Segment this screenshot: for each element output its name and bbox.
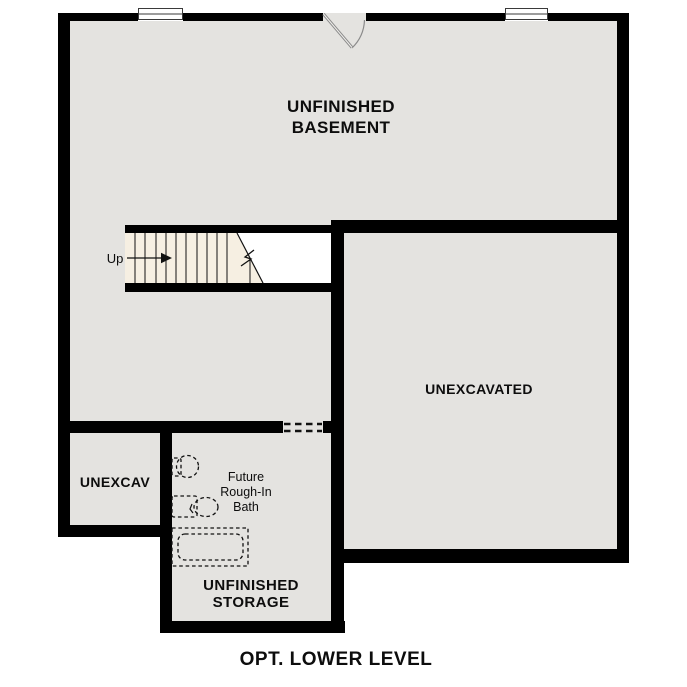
wall-left [58, 13, 70, 537]
wall-unexcavated-bottom [331, 549, 629, 563]
up-label: Up [107, 251, 124, 266]
storage-label-line1: UNFINISHED [203, 577, 299, 594]
floor-plan: UNFINISHED BASEMENT UNEXCAVATED UNEXCAV … [0, 0, 687, 687]
plan-title: OPT. LOWER LEVEL [240, 649, 433, 671]
future-bath-label-line1: Future [220, 470, 271, 485]
wall-storage-bottom [160, 621, 345, 633]
basement-label-line1: UNFINISHED [287, 96, 395, 117]
window-icon-right [506, 9, 548, 20]
basement-label-line2: BASEMENT [287, 117, 395, 138]
future-bath-label-line2: Rough-In [220, 485, 271, 500]
wall-stair-bottom [125, 283, 331, 292]
storage-label: UNFINISHED STORAGE [203, 577, 299, 611]
wall-top-b [183, 13, 323, 21]
future-bath-label: Future Rough-In Bath [220, 470, 271, 515]
unexcavated-label: UNEXCAVATED [425, 381, 533, 397]
storage-label-line2: STORAGE [203, 594, 299, 611]
wall-storage-left [160, 421, 172, 633]
window-icon-left [139, 9, 183, 20]
wall-right [617, 13, 629, 563]
stairs [125, 233, 331, 283]
wall-stair-top [125, 225, 331, 233]
basement-label: UNFINISHED BASEMENT [287, 96, 395, 138]
wall-top-d [548, 13, 629, 21]
unexcav-label: UNEXCAV [80, 474, 150, 490]
wall-mid-b [323, 421, 344, 433]
wall-top-c [366, 13, 505, 21]
wall-unexcav-bottom [58, 525, 172, 537]
wall-unexcavated-top [331, 220, 629, 233]
future-bath-label-line3: Bath [220, 500, 271, 515]
